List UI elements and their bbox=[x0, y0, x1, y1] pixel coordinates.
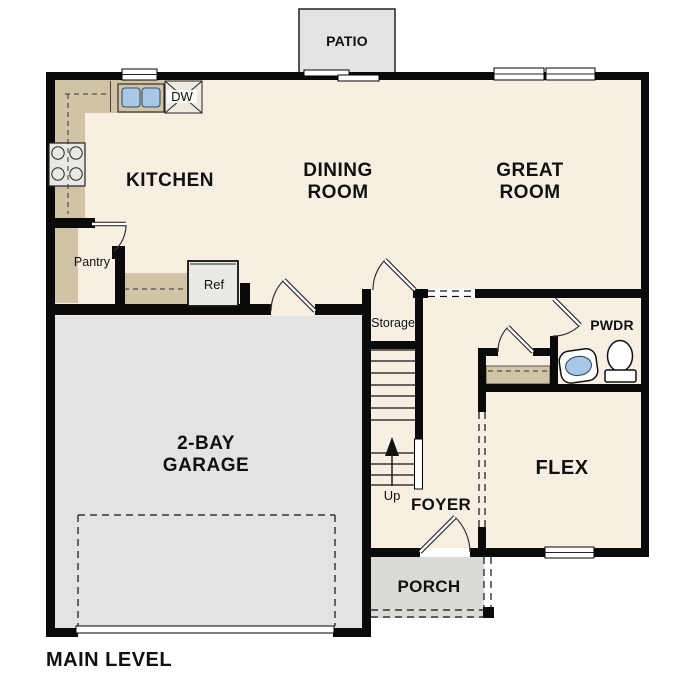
closet-shelf bbox=[486, 366, 550, 384]
wall-powder-left bbox=[550, 336, 558, 392]
wall-pantry-right bbox=[115, 247, 125, 306]
refrigerator-label: Ref bbox=[204, 277, 225, 292]
wall-storage-bottom bbox=[362, 341, 423, 349]
stair-handrail bbox=[415, 439, 423, 489]
storage-label: Storage bbox=[371, 316, 415, 330]
sink-basin-left bbox=[122, 88, 140, 107]
garage-label-line2: GARAGE bbox=[163, 455, 249, 476]
garage-door-panel bbox=[76, 626, 334, 633]
wall-pantry-top bbox=[46, 218, 95, 228]
wall-flex-left-stub-a bbox=[478, 392, 486, 412]
great-room-label-line1: GREAT bbox=[496, 160, 564, 181]
flex-label: FLEX bbox=[535, 457, 588, 479]
wall-flex-top bbox=[478, 384, 649, 392]
stairs-up-label: Up bbox=[384, 488, 401, 503]
porch-post bbox=[483, 607, 494, 618]
plan-title: MAIN LEVEL bbox=[46, 649, 172, 671]
powder-room-label: PWDR bbox=[590, 317, 634, 333]
dining-room-label-line2: ROOM bbox=[307, 182, 368, 203]
pedestal-sink-icon bbox=[558, 348, 599, 385]
sink-basin-right bbox=[142, 88, 160, 107]
porch-label: PORCH bbox=[398, 577, 461, 596]
foyer-label: FOYER bbox=[411, 495, 471, 514]
floor-plan-page: PATIO KITCHEN DINING ROOM GREAT ROOM DW … bbox=[0, 0, 687, 687]
wall-bottom-a bbox=[362, 548, 420, 557]
wall-ref-stub bbox=[240, 283, 250, 315]
wall-closet-top-b bbox=[533, 348, 558, 356]
wall-right-exterior bbox=[641, 72, 649, 557]
wall-greatroom-bottom bbox=[475, 289, 649, 298]
dining-room-label-line1: DINING bbox=[303, 160, 373, 181]
wall-garage-bottom-left bbox=[46, 628, 78, 637]
dishwasher-label: DW bbox=[171, 89, 193, 104]
patio-slider-panel-2 bbox=[338, 75, 379, 81]
pantry-label: Pantry bbox=[74, 255, 111, 269]
garage-label-line1: 2-BAY bbox=[177, 433, 235, 454]
kitchen-label: KITCHEN bbox=[126, 170, 214, 191]
wall-stair-right bbox=[415, 289, 423, 443]
patio-label: PATIO bbox=[326, 33, 368, 49]
floor-plan-drawing: PATIO KITCHEN DINING ROOM GREAT ROOM DW … bbox=[0, 0, 687, 687]
great-room-label-line2: ROOM bbox=[499, 182, 560, 203]
